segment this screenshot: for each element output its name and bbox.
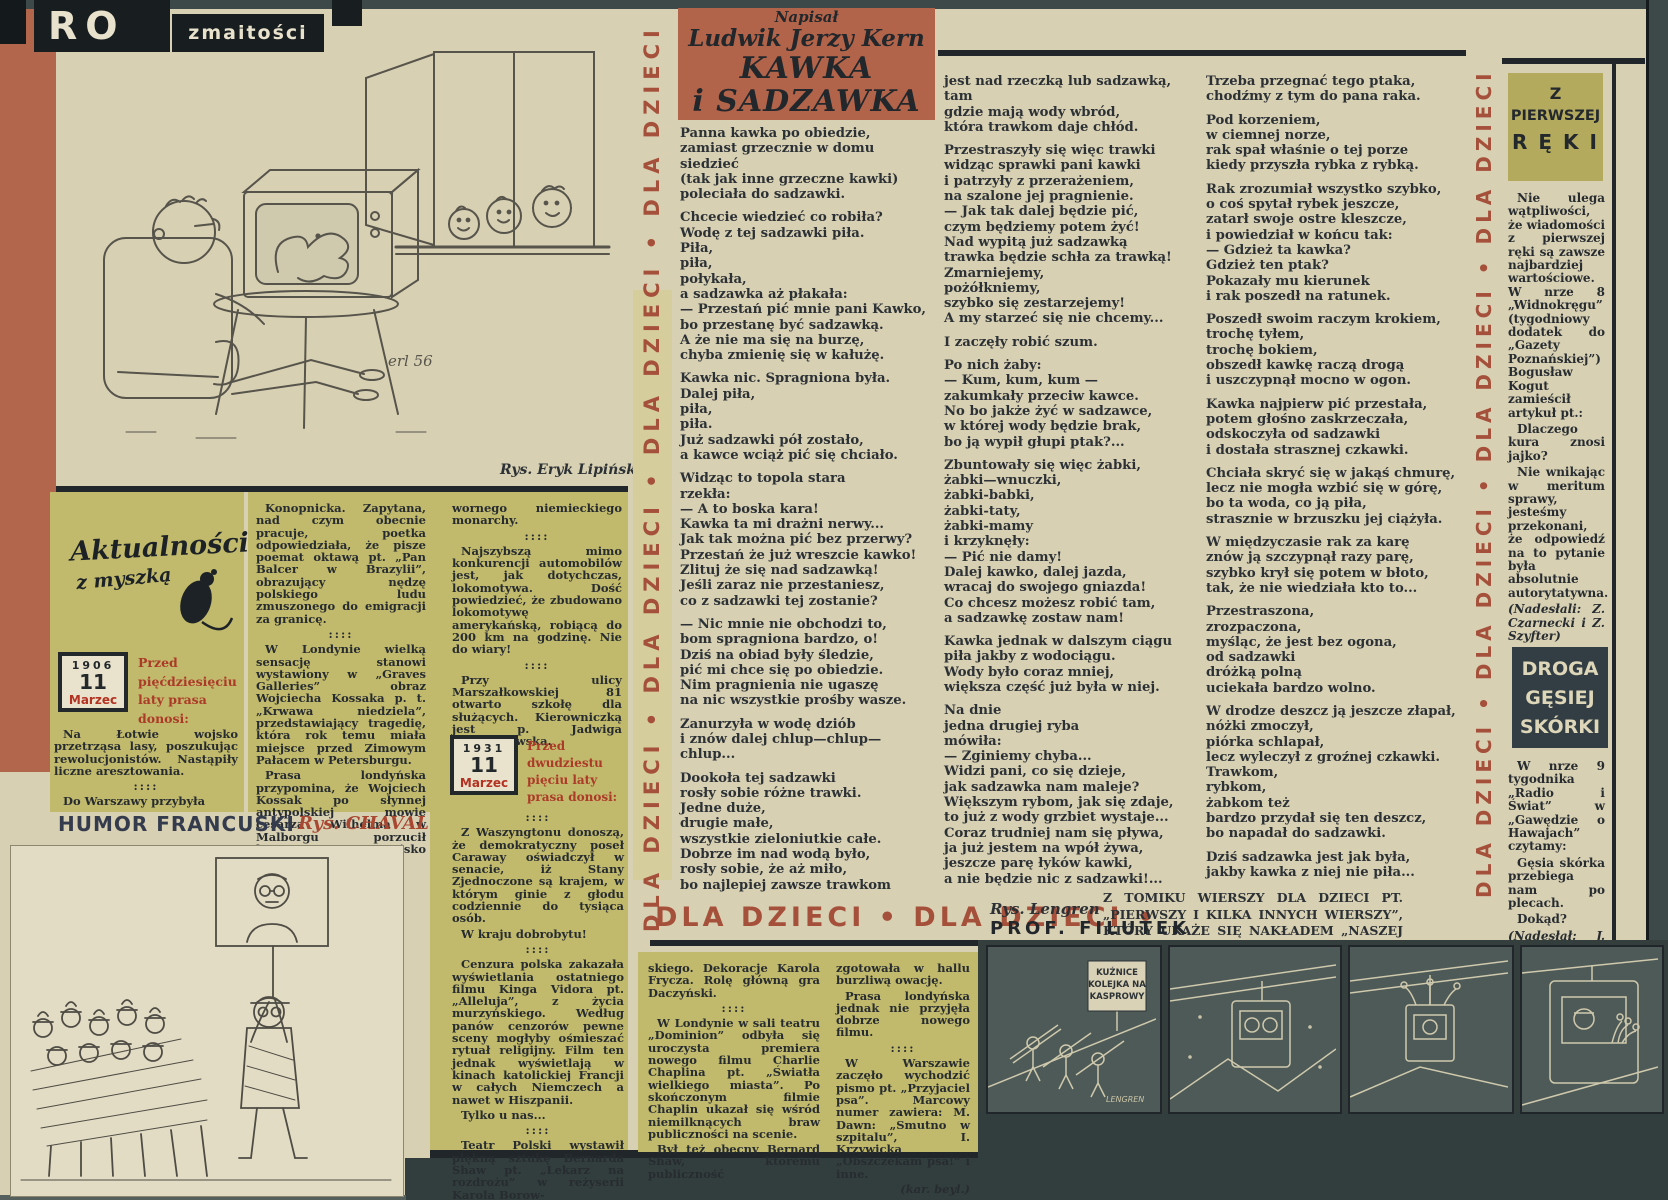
calendar-month: Marzec	[62, 692, 124, 708]
paragraph: Cenzura polska zakazała wyświetlania ost…	[452, 958, 624, 1106]
paragraph: skiego. Dekoracje Karola Frycza. Rolę gł…	[648, 962, 820, 999]
paragraph: Najszybszą mimo konkurencji automobilów …	[452, 545, 622, 656]
aktualnosci-logo-sub: z myszką	[75, 564, 172, 594]
poem-stanza: Przestraszona, zrozpaczona, myśląc, że j…	[1206, 604, 1468, 696]
aktualnosci-lead-1906: Przed pięćdziesięciu laty prasa donosi:	[138, 654, 238, 728]
poem-top-rule	[938, 50, 1466, 56]
poem-stanza: Zbuntowały się więc żabki, żabki—wnuczki…	[944, 458, 1190, 626]
paragraph: W nrze 9 tygodnika „Radio i Świat” w „Ga…	[1508, 760, 1605, 854]
poem-stanza: Po nich żaby: — Kum, kum, kum — zakumkał…	[944, 358, 1190, 450]
section-separator: ::::	[452, 811, 624, 823]
poem-stanza: Chciała skryć się w jakąś chmurę, lecz n…	[1206, 466, 1468, 527]
sidebar-box2-line3: SKÓRKI	[1512, 713, 1608, 742]
mouse-icon	[162, 564, 234, 644]
paragraph: W kraju dobrobytu!	[452, 928, 624, 940]
poem-stanza: Na dnie jedna drugiej ryba mówiła: — Zgi…	[944, 703, 1190, 887]
poem-stanza: Kawka nic. Spragniona była. Dalej piła, …	[680, 371, 936, 463]
section-separator: ::::	[452, 659, 622, 671]
column-b-top: wornego niemieckiego monarchy.::::Najszy…	[452, 502, 622, 751]
paragraph: Tylko u nas...	[452, 1109, 624, 1121]
poem-stanza: W drodze deszcz ją jeszcze złapał, nóżki…	[1206, 704, 1468, 842]
tv-cartoon-signature: erl 56	[388, 352, 433, 370]
section-separator: ::::	[452, 943, 624, 955]
paragraph: Gęsia skórka przebiega nam po plecach.	[1508, 857, 1605, 911]
paragraph: Nie ulega wątpliwości, że wiadomości z p…	[1508, 192, 1605, 420]
paragraph: Nie wnikając w meritum sprawy, jesteśmy …	[1508, 466, 1605, 600]
paragraph: Prasa londyńska jednak nie przyjęła dobr…	[836, 990, 970, 1039]
poem-stanza: Widząc to topola stara rzekła: — A to bo…	[680, 471, 936, 609]
aktualnosci-lead-1931: Przed dwudziestu pięciu laty prasa donos…	[527, 738, 625, 806]
ski-sign-line3: KASPROWY	[1090, 992, 1146, 1002]
poem-stanza: Trzeba przegnać tego ptaka, chodźmy z ty…	[1206, 74, 1468, 105]
poem-stanza: — Nic mnie nie obchodzi to, bom spragnio…	[680, 617, 936, 709]
calendar-day: 11	[454, 755, 514, 775]
comic-panel-3-drawing	[1350, 947, 1508, 1108]
sidebar-box-z-pierwszej-reki: Z PIERWSZEJ R Ę K I	[1508, 73, 1603, 181]
poem-column-2: jest nad rzeczką lub sadzawką, tam gdzie…	[944, 74, 1190, 895]
sidebar-box2-line2: GĘSIEJ	[1512, 684, 1608, 713]
chaval-cartoon-drawing	[11, 846, 401, 1194]
poem-stanza: Kawka najpierw pić przestała, potem głoś…	[1206, 397, 1468, 458]
paragraph: wornego niemieckiego monarchy.	[452, 502, 622, 527]
poem-stanza: I zaczęły robić szum.	[944, 335, 1190, 350]
paragraph: Dokąd?	[1508, 913, 1605, 926]
comic-panel-4	[1520, 945, 1664, 1114]
poem-stanza: Poszedł swoim raczym krokiem, trochę tył…	[1206, 312, 1468, 388]
calendar-month: Marzec	[454, 775, 514, 791]
poem-written-by: Napisał	[678, 9, 935, 26]
poem-column-3: Trzeba przegnać tego ptaka, chodźmy z ty…	[1206, 74, 1468, 888]
section-separator: ::::	[452, 1124, 624, 1136]
magazine-page: RO zmaitości	[0, 0, 1668, 1200]
paragraph: Był też obecny Bernard Shaw, któremu pub…	[648, 1143, 820, 1180]
poem-column-1: Panna kawka po obiedzie, zamiast grzeczn…	[680, 126, 936, 901]
section-separator: ::::	[648, 1002, 820, 1014]
masthead-block	[332, 0, 362, 26]
comic-panel-1: KUŹNICE KOLEJKA NA KASPROWY LENGREN	[986, 945, 1162, 1114]
sidebar-box1-line2: PIERWSZEJ	[1508, 105, 1603, 127]
paragraph: Z Waszyngtonu donoszą, że demokratyczny …	[452, 826, 624, 924]
paragraph: Do Warszawy przybyła	[54, 795, 238, 807]
poem-title-line2: i SADZAWKA	[678, 86, 935, 118]
poem-stanza: Przestraszyły się więc trawki widząc spr…	[944, 143, 1190, 327]
paragraph: Konopnicka. Zapytana, nad czym obecnie p…	[256, 502, 426, 625]
calendar-day: 11	[62, 672, 124, 692]
paragraph: (Nadesłali: Z. Czarnecki i Z. Szyfter)	[1508, 603, 1605, 643]
comic-panel-4-drawing	[1522, 947, 1658, 1108]
paragraph: W Londynie w sali teatru „Dominion” odby…	[648, 1017, 820, 1140]
section-separator: ::::	[54, 780, 238, 792]
humor-francuski-credit: Rys. CHAVAL	[298, 813, 429, 834]
tv-cartoon-drawing: erl 56	[66, 40, 611, 460]
ski-sign-line2: KOLEJKA NA	[1088, 980, 1146, 990]
poem-stanza: Zanurzyła w wodę dziób i znów dalej chlu…	[680, 717, 936, 763]
sidebar-box-droga-gesiej-skorki: DROGA GĘSIEJ SKÓRKI	[1512, 647, 1608, 748]
dla-dzieci-strip-left: DLA DZIECI • DLA DZIECI • DLA DZIECI • D…	[640, 24, 664, 932]
sidebar-top-rule	[1502, 58, 1645, 64]
poem-stanza: Rak zrozumiał wszystko szybko, o coś spy…	[1206, 182, 1468, 304]
bottom-band-right	[978, 1112, 1668, 1200]
column-b-bottom: ::::Z Waszyngtonu donoszą, że demokratyc…	[452, 810, 624, 1200]
column-d: zgotowała w hallu burzliwą owację.Prasa …	[836, 962, 970, 1198]
section-separator: ::::	[256, 628, 426, 640]
calendar-1906: 1906 11 Marzec	[58, 652, 128, 712]
comic-panel-2	[1168, 945, 1342, 1114]
poem-stanza: Chcecie wiedzieć co robiła? Wodę z tej s…	[680, 210, 936, 363]
poem-title-box: Napisał Ludwik Jerzy Kern KAWKA i SADZAW…	[678, 8, 935, 120]
corner-black-piece	[0, 0, 26, 44]
tv-cartoon-credit: Rys. Eryk Lipiński	[500, 462, 641, 478]
poem-stanza: Panna kawka po obiedzie, zamiast grzeczn…	[680, 126, 936, 202]
left-terracotta-strip	[0, 9, 56, 772]
column-c: skiego. Dekoracje Karola Frycza. Rolę gł…	[648, 962, 820, 1183]
ski-sign-line1: KUŹNICE	[1096, 966, 1138, 978]
aktualnosci-logo: Aktualności	[69, 527, 249, 567]
comic-signature: LENGREN	[1106, 1095, 1144, 1104]
sidebar-box2-line1: DROGA	[1512, 647, 1608, 684]
section-separator: ::::	[452, 530, 622, 542]
poem-stanza: jest nad rzeczką lub sadzawką, tam gdzie…	[944, 74, 1190, 135]
filutek-title: PROF. FILUTEK	[990, 918, 1190, 939]
paragraph: W Warszawie zaczęło wychodzić pismo pt. …	[836, 1057, 970, 1180]
calendar-1931: 1931 11 Marzec	[450, 735, 518, 795]
comic-panel-3	[1348, 945, 1514, 1114]
poem-stanza: Kawka jednak w dalszym ciągu piła jakby …	[944, 634, 1190, 695]
sidebar-text-2: W nrze 9 tygodnika „Radio i Świat” w „Ga…	[1508, 760, 1605, 960]
paragraph: W Londynie wielką sensację stanowi wysta…	[256, 643, 426, 766]
poem-stanza: W międzyczasie rak za karę znów ją szczy…	[1206, 535, 1468, 596]
paragraph: Teatr Polski wystawił piękną sztukę Bern…	[452, 1139, 624, 1200]
chaval-cartoon	[10, 845, 404, 1197]
humor-francuski-title: HUMOR FRANCUSKI	[58, 812, 295, 836]
poem-author: Ludwik Jerzy Kern	[678, 26, 935, 52]
strip-bottom-rule	[650, 940, 980, 946]
sidebar-box1-line1: Z	[1508, 73, 1603, 105]
aktualnosci-box: Aktualności z myszką 1906 11 Marzec Prze…	[50, 492, 244, 812]
paragraph: zgotowała w hallu burzliwą owację.	[836, 962, 970, 987]
sidebar-text-1: Nie ulega wątpliwości, że wiadomości z p…	[1508, 192, 1605, 646]
poem-stanza: Dziś sadzawka jest jak była, jakby kawka…	[1206, 850, 1468, 881]
poem-stanza: Pod korzeniem, w ciemnej norze, rak spał…	[1206, 113, 1468, 174]
comic-panel-2-drawing	[1170, 947, 1336, 1108]
section-separator: ::::	[836, 1042, 970, 1054]
poem-stanza: Dookoła tej sadzawki rosły sobie różne t…	[680, 771, 936, 893]
comic-panel-1-drawing: KUŹNICE KOLEJKA NA KASPROWY LENGREN	[988, 947, 1156, 1108]
sidebar-box1-line3: R Ę K I	[1508, 127, 1603, 157]
paragraph: (kar. beyl.)	[836, 1183, 970, 1195]
dla-dzieci-strip-right: DLA DZIECI • DLA DZIECI • DLA DZIECI • D…	[1472, 68, 1496, 898]
paragraph: Na Łotwie wojsko przetrząsa lasy, poszuk…	[54, 728, 238, 777]
tv-cartoon: erl 56	[66, 40, 611, 460]
aktualnosci-intro: Na Łotwie wojsko przetrząsa lasy, poszuk…	[54, 728, 238, 811]
poem-title-line1: KAWKA	[678, 52, 935, 86]
filutek-credit: Rys. Lengren	[990, 900, 1100, 918]
paragraph: Dlaczego kura znosi jajko?	[1508, 423, 1605, 463]
